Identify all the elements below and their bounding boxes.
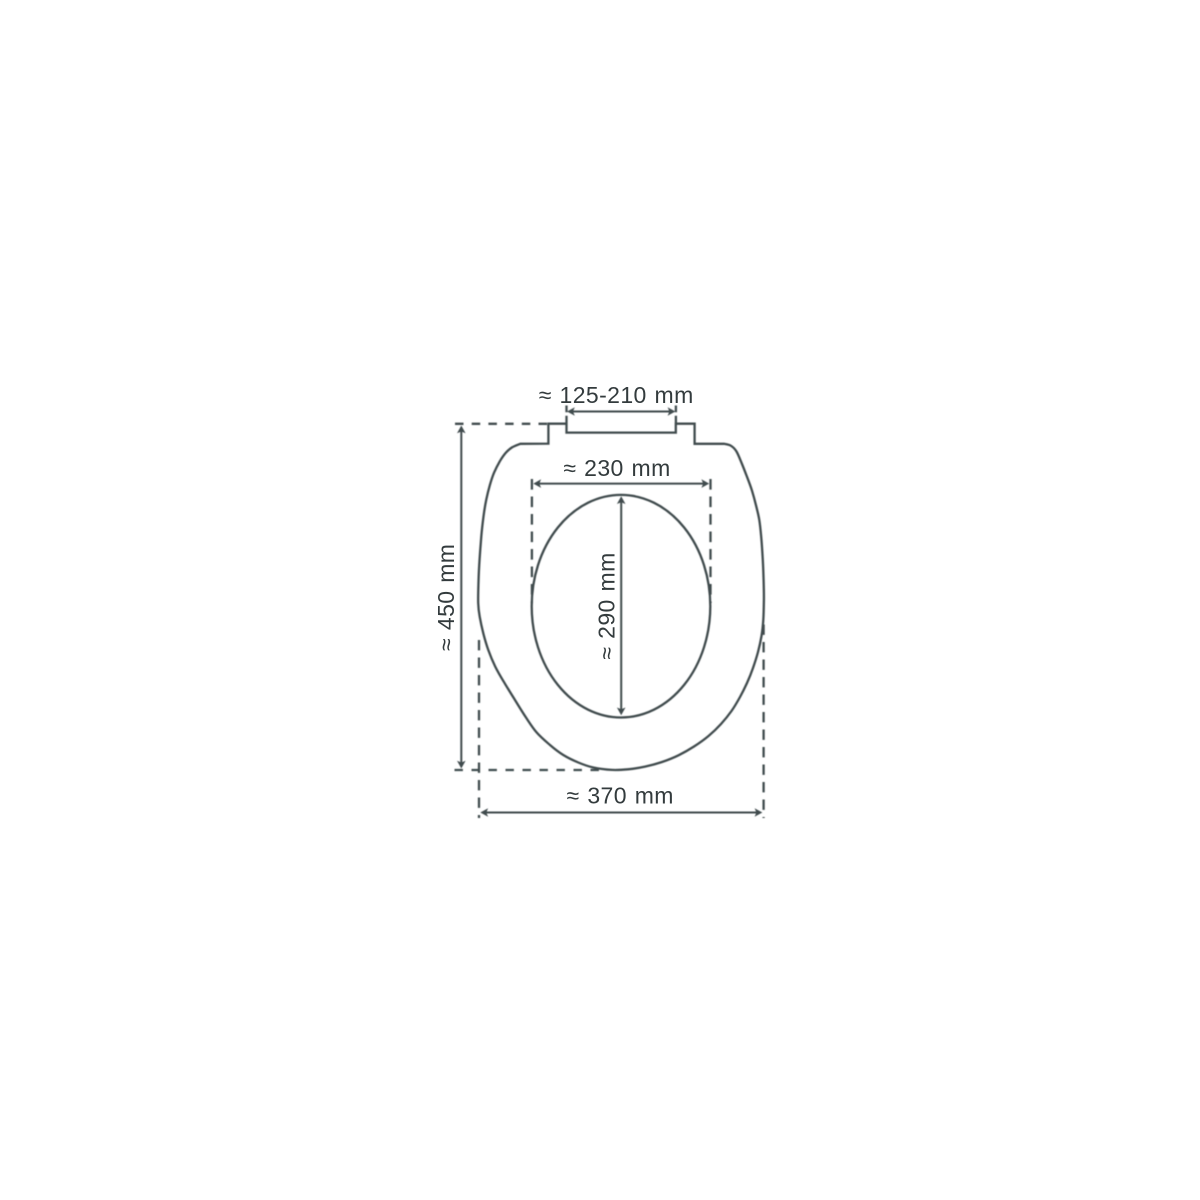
svg-text:≈ 370 mm: ≈ 370 mm <box>567 783 674 809</box>
svg-text:≈ 125-210 mm: ≈ 125-210 mm <box>539 382 694 408</box>
svg-text:≈ 230 mm: ≈ 230 mm <box>563 455 670 481</box>
svg-text:≈ 450 mm: ≈ 450 mm <box>433 544 459 651</box>
svg-text:≈ 290 mm: ≈ 290 mm <box>594 552 620 659</box>
